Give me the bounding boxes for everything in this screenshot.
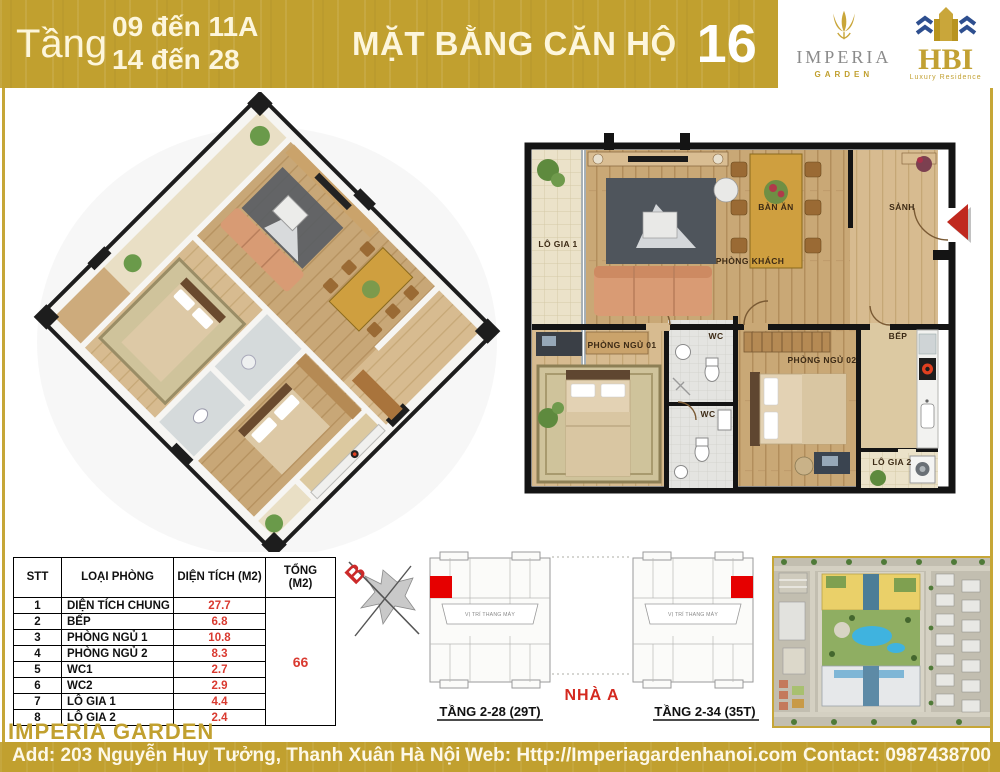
col-header-area: DIỆN TÍCH (M2) (174, 558, 266, 598)
hbi-logo-sub: Luxury Residence (910, 74, 982, 81)
floorplan-2d: LÔ GIA 1 BÀN ĂN PHÒNG KHÁCH SẢNH PHÒNG N… (518, 120, 973, 528)
col-header-room: LOẠI PHÒNG (62, 558, 174, 598)
compass-label: B (340, 558, 371, 589)
site-masterplan-image (774, 558, 990, 726)
cell-room: WC1 (62, 662, 174, 678)
building-label: NHÀ A (564, 685, 619, 704)
header-logos: IMPERIA GARDEN HBI Luxury Residence (778, 0, 1000, 88)
room-label-phong-ngu-01: PHÒNG NGỦ 01 (587, 339, 656, 350)
col-header-total: TỔNG (M2) (266, 558, 336, 598)
imperia-garden-logo: IMPERIA GARDEN (796, 9, 891, 79)
cell-area: 10.8 (174, 630, 266, 646)
cell-area: 6.8 (174, 614, 266, 630)
room-label-lo-gia-1: LÔ GIA 1 (538, 238, 577, 249)
room-label-phong-khach: PHÒNG KHÁCH (716, 255, 785, 266)
cell-stt: 5 (14, 662, 62, 678)
room-label-sanh: SẢNH (889, 201, 915, 212)
cell-area: 4.4 (174, 694, 266, 710)
cell-area: 8.3 (174, 646, 266, 662)
highlighted-unit-right (731, 576, 753, 598)
imperia-logo-name: IMPERIA (796, 47, 891, 68)
floor-range-line2: 14 đến 28 (112, 43, 258, 76)
cell-stt: 2 (14, 614, 62, 630)
unit-number: 16 (697, 13, 757, 75)
keyplan-left-caption: TẦNG 2-28 (29T) (439, 704, 540, 719)
cell-total: 66 (266, 598, 336, 726)
brochure-page: Tầng 09 đến 11A 14 đến 28 MẶT BẰNG CĂN H… (0, 0, 1000, 772)
siteplan-tower-top (822, 574, 920, 610)
floor-range: 09 đến 11A 14 đến 28 (112, 10, 258, 76)
cell-area: 2.7 (174, 662, 266, 678)
footer-contact: Contact: 0987438700 (803, 745, 991, 767)
cell-room: DIỆN TÍCH CHUNG (62, 598, 174, 614)
cell-room: PHÒNG NGỦ 1 (62, 630, 174, 646)
cell-stt: 1 (14, 598, 62, 614)
cell-stt: 3 (14, 630, 62, 646)
cell-stt: 6 (14, 678, 62, 694)
footer-bar: Add: 203 Nguyễn Huy Tưởng, Thanh Xuân Hà… (0, 742, 1000, 772)
floor-range-line1: 09 đến 11A (112, 10, 258, 43)
cell-room: PHÒNG NGỦ 2 (62, 646, 174, 662)
cell-stt: 7 (14, 694, 62, 710)
cell-stt: 4 (14, 646, 62, 662)
footer-address: Add: 203 Nguyễn Huy Tưởng, Thanh Xuân Hà… (12, 745, 460, 767)
highlighted-unit-left (430, 576, 452, 598)
hbi-buildings-icon (915, 7, 977, 41)
siteplan-courtyard (822, 610, 920, 666)
cell-area: 27.7 (174, 598, 266, 614)
keyplan-left: VỊ TRÍ THANG MÁY (430, 552, 550, 688)
imperia-tulip-icon (826, 9, 862, 41)
col-header-stt: STT (14, 558, 62, 598)
area-table: STT LOẠI PHÒNG DIỆN TÍCH (M2) TỔNG (M2) … (13, 557, 336, 726)
site-masterplan (772, 556, 992, 728)
table-header-row: STT LOẠI PHÒNG DIỆN TÍCH (M2) TỔNG (M2) (14, 558, 336, 598)
room-label-lo-gia-2: LÔ GIA 2 (872, 456, 911, 467)
room-label-wc-bottom: WC (701, 409, 716, 419)
header-title-row: MẶT BẰNG CĂN HỘ 16 (352, 0, 757, 88)
floorplan-3d-render (12, 92, 507, 552)
keyplan-right-caption: TẦNG 2-34 (35T) (654, 704, 755, 719)
cell-room: LÔ GIA 1 (62, 694, 174, 710)
room-label-wc-top: WC (709, 331, 724, 341)
col-header-total-line2: (M2) (269, 578, 332, 591)
page-title: MẶT BẰNG CĂN HỘ (352, 25, 677, 63)
hbi-logo: HBI Luxury Residence (910, 7, 982, 81)
cell-area: 2.9 (174, 678, 266, 694)
siteplan-tower-bottom (822, 666, 920, 706)
header-gold-bar: Tầng 09 đến 11A 14 đến 28 MẶT BẰNG CĂN H… (0, 0, 778, 88)
left-border-line (2, 88, 5, 742)
imperia-logo-sub: GARDEN (796, 70, 891, 79)
kitchen-fixtures (917, 330, 938, 448)
room-label-bep: BẾP (889, 331, 908, 341)
table-row: 1 DIỆN TÍCH CHUNG 27.7 66 (14, 598, 336, 614)
col-header-total-line1: TỔNG (269, 565, 332, 578)
key-plans: B VỊ TRÍ THANG MÁY (335, 548, 770, 733)
hbi-logo-name: HBI (910, 46, 982, 74)
footer-website: Web: Http://Imperiagardenhanoi.com (465, 745, 797, 767)
compass-icon: B (340, 558, 419, 636)
cell-room: WC2 (62, 678, 174, 694)
room-label-ban-an: BÀN ĂN (758, 202, 793, 212)
elevator-label-left: VỊ TRÍ THANG MÁY (465, 611, 515, 618)
cell-room: BẾP (62, 614, 174, 630)
keyplan-right: VỊ TRÍ THANG MÁY (633, 552, 753, 688)
elevator-label-right: VỊ TRÍ THANG MÁY (668, 611, 718, 618)
floor-word: Tầng (16, 22, 107, 67)
room-label-phong-ngu-02: PHÒNG NGỦ 02 (787, 354, 856, 365)
